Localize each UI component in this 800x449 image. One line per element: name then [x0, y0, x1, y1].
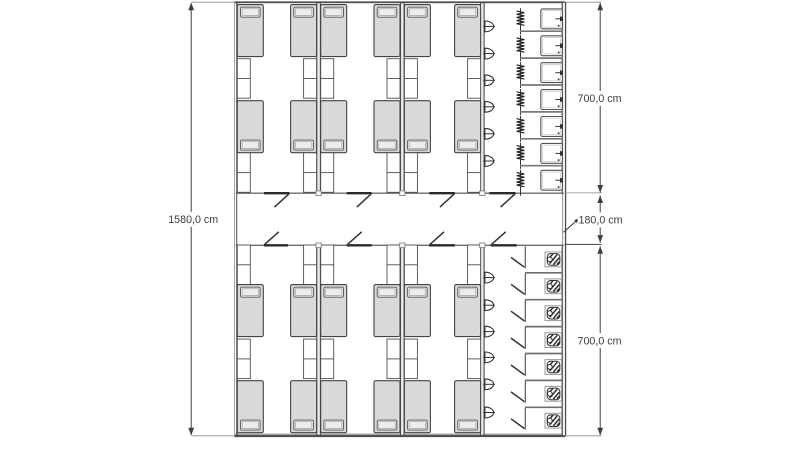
svg-text:700,0 cm: 700,0 cm [578, 93, 622, 105]
svg-text:700,0 cm: 700,0 cm [578, 335, 622, 347]
svg-text:180,0 cm: 180,0 cm [579, 215, 623, 227]
svg-text:1580,0 cm: 1580,0 cm [168, 214, 218, 226]
